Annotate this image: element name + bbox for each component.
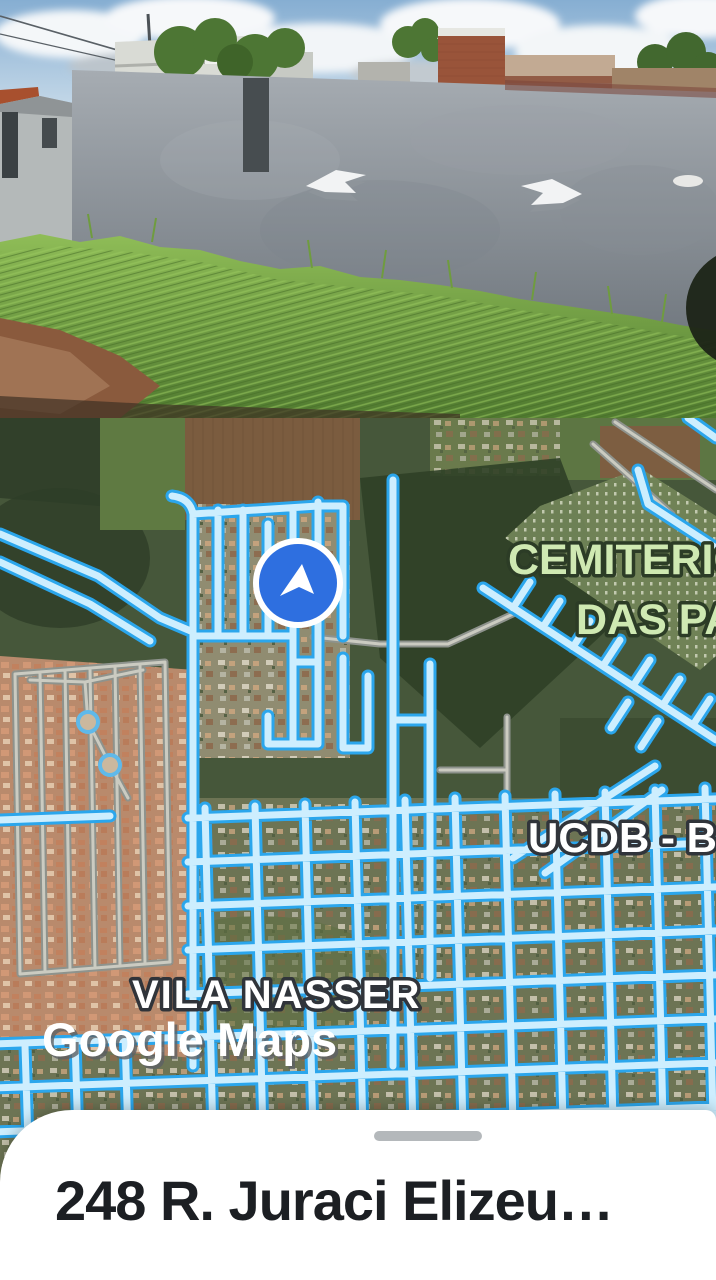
street-view-panel[interactable] [0,0,716,418]
label-cemiterio-line2: DAS PA [576,596,716,644]
current-location-marker [256,541,340,625]
bottom-sheet[interactable]: 248 R. Juraci Elizeu… [0,1110,716,1280]
label-vila-nasser: VILA NASSER [132,973,421,1017]
label-ucdb: UCDB - Bl [528,814,716,861]
address-title: 248 R. Juraci Elizeu… [55,1168,695,1233]
drag-handle[interactable] [374,1131,482,1141]
google-watermark: Google Maps [42,1013,337,1066]
metal-gate [243,78,269,172]
label-cemiterio-line1: CEMITERIO [508,536,716,584]
google-maps-screen: CEMITERIO DAS PA UCDB - Bl VILA NASSER G… [0,0,716,1280]
